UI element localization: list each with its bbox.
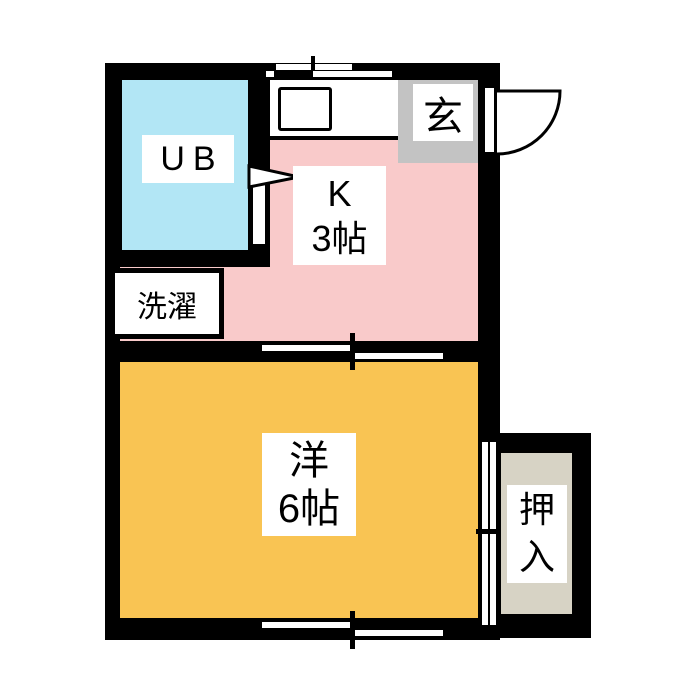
sliding-door-kitchen-pane-right bbox=[352, 353, 443, 359]
closet-text-top: 押 bbox=[519, 487, 555, 534]
sliding-door-kitchen-pane-left bbox=[262, 345, 352, 351]
western-letter: 洋 bbox=[289, 437, 329, 485]
sliding-door-kitchen-tick bbox=[350, 333, 355, 370]
laundry-text: 洗濯 bbox=[137, 282, 197, 326]
entrance-door-opening bbox=[483, 86, 496, 154]
window-top-mullion-tick bbox=[311, 56, 315, 70]
window-top-small-pane bbox=[266, 71, 274, 77]
label-western-room: 洋 6帖 bbox=[262, 433, 356, 536]
label-entrance: 玄 bbox=[413, 84, 473, 141]
closet-text-bottom: 入 bbox=[519, 534, 555, 581]
kitchen-letter: K bbox=[327, 171, 351, 216]
label-kitchen: K 3帖 bbox=[293, 166, 386, 265]
window-bottom-pane-left bbox=[262, 622, 352, 628]
window-bottom-tick bbox=[350, 611, 355, 649]
kitchen-size: 3帖 bbox=[311, 216, 367, 261]
label-unit-bath: UB bbox=[142, 135, 234, 183]
window-top-pane-right bbox=[313, 71, 392, 77]
kitchen-sink-icon bbox=[278, 87, 332, 131]
unit-bath-door-opening bbox=[251, 170, 267, 246]
western-size: 6帖 bbox=[278, 485, 340, 533]
label-closet: 押 入 bbox=[507, 485, 567, 583]
entrance-door-swing-arc bbox=[497, 91, 560, 154]
entrance-text: 玄 bbox=[423, 84, 463, 142]
floorplan-page: { "floorplan": { "type": "japanese-apart… bbox=[0, 0, 700, 700]
unit-bath-text: UB bbox=[152, 140, 223, 179]
window-bottom-pane-right bbox=[352, 630, 443, 636]
closet-sliding-door-tick bbox=[476, 529, 501, 534]
laundry-machine-box: 洗濯 bbox=[110, 268, 224, 339]
